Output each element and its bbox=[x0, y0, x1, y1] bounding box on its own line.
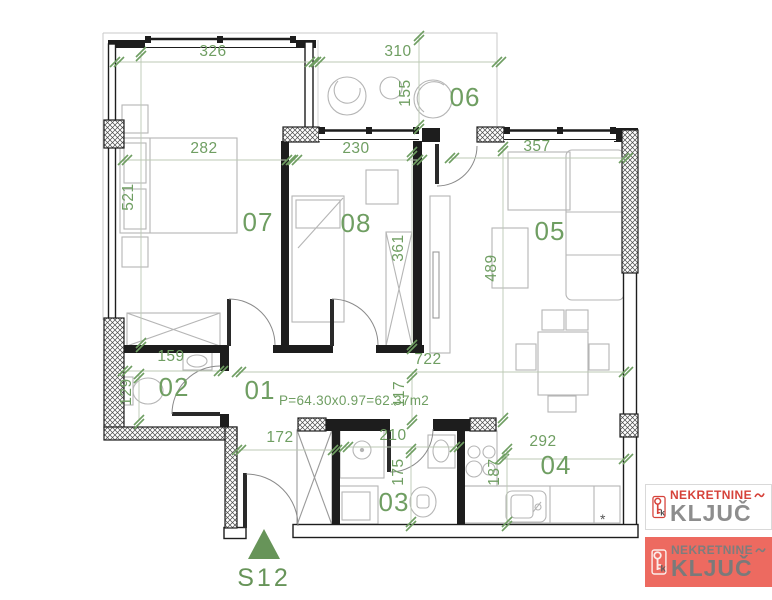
floor-plan-page: 3263101552822303575213614891591297221171… bbox=[0, 0, 772, 600]
dimension-label-155: 155 bbox=[397, 79, 414, 106]
living-room-furniture bbox=[430, 150, 624, 412]
dimension-label-282: 282 bbox=[190, 140, 217, 157]
doors bbox=[172, 144, 477, 528]
window-living-room bbox=[504, 127, 616, 141]
room-08-label: 08 bbox=[341, 208, 372, 238]
room-05-label: 05 bbox=[535, 216, 566, 246]
dimension-label-310: 310 bbox=[384, 43, 411, 60]
room-04-label: 04 bbox=[541, 450, 572, 480]
dimension-label-230: 230 bbox=[342, 140, 369, 157]
dimension-label-175: 175 bbox=[390, 458, 407, 485]
key-icon-letter: k bbox=[660, 508, 665, 517]
logo-brand-name: KLJUČ bbox=[671, 557, 766, 580]
dimension-label-357: 357 bbox=[523, 138, 550, 155]
logo-brand-name: KLJUČ bbox=[670, 502, 765, 525]
dimension-label-129: 129 bbox=[118, 378, 135, 405]
logo-swoosh-icon bbox=[755, 546, 766, 555]
dimension-label-489: 489 bbox=[483, 254, 500, 281]
dimension-label-210: 210 bbox=[379, 427, 406, 444]
room-02-label: 02 bbox=[159, 372, 190, 402]
key-icon-letter: k bbox=[660, 563, 666, 574]
dimension-label-361: 361 bbox=[390, 234, 407, 261]
room-07-label: 07 bbox=[243, 207, 274, 237]
agency-logo-dark: k NEKRETNINE KLJUČ bbox=[645, 537, 772, 587]
area-formula: P=64.30x0.97=62.37m2 bbox=[279, 393, 429, 408]
logo-text: NEKRETNINE KLJUČ bbox=[670, 489, 765, 525]
dimension-label-521: 521 bbox=[120, 183, 137, 210]
dimension-label-187: 187 bbox=[486, 458, 503, 485]
dimension-label-159: 159 bbox=[157, 348, 184, 365]
room-06-label: 06 bbox=[450, 82, 481, 112]
logo-text: NEKRETNINE KLJUČ bbox=[671, 544, 766, 580]
logo-swoosh-icon bbox=[754, 491, 765, 500]
dimension-label-722: 722 bbox=[414, 351, 441, 368]
room-01-label: 01 bbox=[245, 375, 276, 405]
room-03-label: 03 bbox=[379, 487, 410, 517]
key-icon: k bbox=[651, 544, 667, 580]
entrance-label: S12 bbox=[237, 564, 290, 592]
key-icon: k bbox=[652, 489, 666, 525]
dimension-label-172: 172 bbox=[266, 429, 293, 446]
agency-logo-light: k NEKRETNINE KLJUČ bbox=[645, 484, 772, 530]
hall-wardrobe bbox=[297, 430, 332, 525]
window-bedroom-08 bbox=[319, 127, 419, 141]
entrance-triangle-icon bbox=[248, 529, 280, 559]
bedroom-07-furniture bbox=[120, 105, 237, 346]
footnote-asterisk: * bbox=[600, 511, 606, 527]
terrace-furniture bbox=[328, 77, 452, 118]
dimension-label-292: 292 bbox=[529, 433, 556, 450]
dimension-label-326: 326 bbox=[199, 43, 226, 60]
